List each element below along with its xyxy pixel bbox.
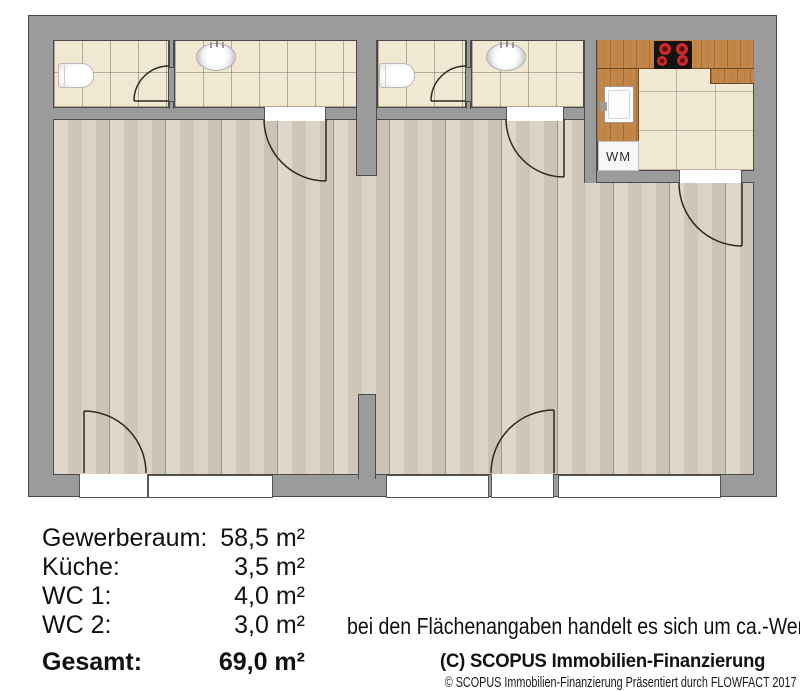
toilet-icon xyxy=(379,63,415,88)
faucet-icon xyxy=(506,41,508,47)
entry-door-middle xyxy=(491,474,554,498)
legend-label: Gewerberaum: xyxy=(42,524,207,553)
toilet-icon xyxy=(58,63,94,88)
kitchen-sink-icon xyxy=(604,86,634,123)
washbasin-icon xyxy=(196,43,236,71)
window-middle xyxy=(386,475,489,498)
window-left xyxy=(148,475,273,498)
legend-value: 58,5 m² xyxy=(207,524,305,553)
washbasin-icon xyxy=(486,43,526,71)
legend-total-label: Gesamt: xyxy=(42,648,195,678)
washing-machine-label: WM xyxy=(606,149,631,164)
legend-row-gewerberaum: Gewerberaum: 58,5 m² xyxy=(42,524,305,553)
legend-row-wc1: WC 1: 4,0 m² xyxy=(42,582,305,611)
floor-plan: WM xyxy=(28,15,777,497)
wall-stub-bottom xyxy=(358,394,376,479)
burner-icon xyxy=(659,43,671,55)
credit-line: © SCOPUS Immobilien-Finanzierung Präsent… xyxy=(444,675,796,691)
legend-total-value: 69,0 m² xyxy=(195,648,305,678)
wall-kitchen-left xyxy=(584,40,597,183)
doorway-wc1 xyxy=(264,107,326,121)
window-right xyxy=(558,475,721,498)
legend-row-gesamt: Gesamt: 69,0 m² xyxy=(42,648,305,678)
kitchen-counter-right xyxy=(710,69,754,84)
legend-row-wc2: WC 2: 3,0 m² xyxy=(42,611,305,640)
legend-row-kueche: Küche: 3,5 m² xyxy=(42,553,305,582)
area-legend: Gewerberaum: 58,5 m² Küche: 3,5 m² WC 1:… xyxy=(42,524,305,678)
copyright-line: (C) SCOPUS Immobilien-Finanzierung xyxy=(440,651,765,673)
wall-divider-top xyxy=(356,40,377,176)
approximation-note: bei den Flächenangaben handelt es sich u… xyxy=(347,612,800,640)
legend-label: WC 2: xyxy=(42,611,195,640)
washing-machine-icon: WM xyxy=(598,141,639,171)
legend-value: 4,0 m² xyxy=(195,582,305,611)
legend-value: 3,0 m² xyxy=(195,611,305,640)
legend-label: WC 1: xyxy=(42,582,195,611)
burner-icon xyxy=(657,56,667,66)
burner-icon xyxy=(676,43,688,55)
faucet-icon xyxy=(216,41,218,47)
legend-value: 3,5 m² xyxy=(195,553,305,582)
burner-icon xyxy=(677,55,688,66)
kitchen-faucet-icon xyxy=(600,102,607,111)
stove-icon xyxy=(654,41,692,69)
legend-label: Küche: xyxy=(42,553,195,582)
entry-door-left xyxy=(79,474,148,498)
doorway-kitchen xyxy=(679,170,742,183)
doorway-wc2 xyxy=(506,107,564,121)
